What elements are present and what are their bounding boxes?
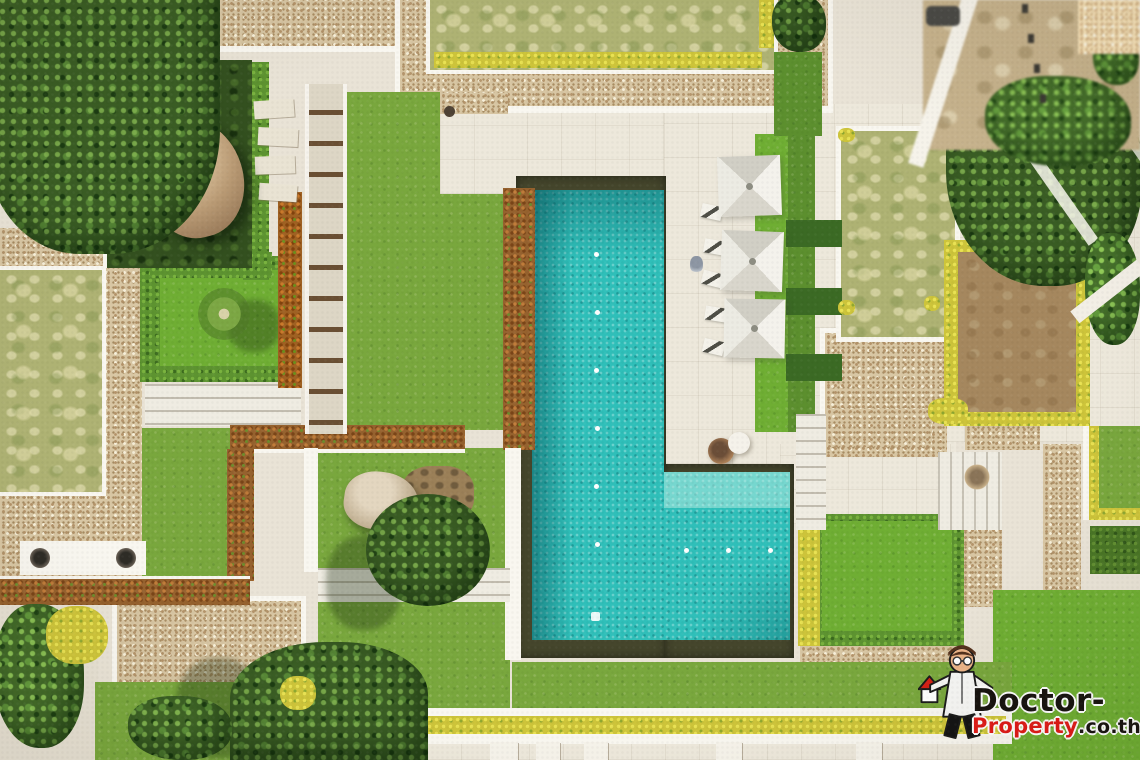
grass-shadow-bar-3 xyxy=(786,354,842,381)
round-stool xyxy=(728,432,750,454)
steps-bottom-right xyxy=(938,452,1002,530)
step-slab xyxy=(253,99,294,120)
yellow-bush-mid xyxy=(280,676,316,710)
lawn-square-right-edge xyxy=(1083,426,1140,520)
path-step-block xyxy=(856,742,882,760)
gravel-strip-vert-2 xyxy=(1043,444,1081,608)
roof-vent xyxy=(116,548,136,568)
gravel-band-arm-top xyxy=(826,408,932,447)
fence-post xyxy=(1034,64,1040,73)
long-planter xyxy=(350,708,1012,744)
grass-shadow-bar-2 xyxy=(786,288,842,315)
sand-pile xyxy=(1078,0,1140,54)
step-slab xyxy=(255,155,296,174)
watermark: Doctor- Property.co.th xyxy=(916,636,1140,760)
step-slab xyxy=(258,127,299,147)
dark-bins xyxy=(926,6,960,26)
fence-post xyxy=(1028,34,1034,43)
step-slab xyxy=(258,183,297,203)
pool-arm xyxy=(664,472,790,640)
rust-hedge-pool-west xyxy=(503,188,535,450)
pool-light xyxy=(595,542,600,547)
fence-post xyxy=(1040,94,1046,103)
pool-light xyxy=(595,426,600,431)
planter-pot xyxy=(444,106,455,117)
fence-post xyxy=(1022,4,1028,13)
tree-bottom-center xyxy=(230,642,428,760)
pool-light xyxy=(594,368,599,373)
rust-hedge-band-mid xyxy=(230,425,465,453)
lawn-notch-terrace xyxy=(440,114,508,194)
pool-skimmer xyxy=(591,612,600,621)
watermark-brand-name: Property xyxy=(972,714,1078,738)
path-step-block xyxy=(716,742,742,760)
yellow-hedge-border-l xyxy=(1089,426,1099,520)
pool-light xyxy=(595,310,600,315)
terrace-drain-ring xyxy=(964,464,990,490)
pool-light xyxy=(768,548,773,553)
pool-light xyxy=(594,252,599,257)
hedge-square-right-edge xyxy=(1090,526,1140,574)
yellow-hedge-left xyxy=(798,514,820,646)
yellow-hedge-border xyxy=(434,52,762,68)
yellow-bush-corner xyxy=(838,300,855,315)
planter-yellow-hedge xyxy=(356,716,1006,734)
watermark-brand-line1: Doctor- xyxy=(972,688,1140,715)
grass-patch-top-mid xyxy=(774,52,822,136)
pool-arm-shading xyxy=(700,560,790,640)
rust-hedge-vertical-left xyxy=(227,449,254,581)
lawn-left-mid xyxy=(142,428,230,580)
steps-to-pool-arm xyxy=(796,414,826,530)
pool-light xyxy=(684,548,689,553)
green-roof-br-lawn xyxy=(822,521,952,631)
parasol-1 xyxy=(717,155,782,217)
path-step-block xyxy=(584,742,608,760)
watermark-brand-line2: Property.co.th xyxy=(972,715,1140,738)
pool-shadow-top xyxy=(532,190,664,260)
green-roof-bottom-right xyxy=(798,514,964,646)
tree-top-mid xyxy=(772,0,826,52)
grass-strip-2 xyxy=(788,134,815,432)
aerial-photo-canvas: Doctor- Property.co.th xyxy=(0,0,1140,760)
stepping-stone-path xyxy=(305,84,347,434)
watermark-domain-suffix: .co.th xyxy=(1078,716,1140,738)
yellow-bush-corner xyxy=(838,128,855,142)
pool-light xyxy=(594,484,599,489)
grass-shadow-bar-1 xyxy=(786,220,842,247)
pool-main xyxy=(532,190,664,640)
pool-west-wall xyxy=(505,448,521,660)
palm-plant xyxy=(198,288,250,340)
shrubs-bottom-left xyxy=(128,696,232,760)
rust-hedge-strip-ladder xyxy=(278,192,302,388)
green-roof-top-lawn xyxy=(426,0,778,74)
vent-roof-left xyxy=(20,541,146,575)
pool-light xyxy=(726,548,731,553)
parasol-2 xyxy=(720,230,784,292)
yellow-bush-left xyxy=(46,606,108,664)
green-roof-left-lawn xyxy=(0,266,106,496)
pool-shallow-shelf xyxy=(664,472,790,508)
roof-vent xyxy=(30,548,50,568)
rust-hedge-band-bottom-left xyxy=(0,576,250,605)
garden-west-wall xyxy=(304,448,318,572)
neighbour-tree xyxy=(985,76,1131,166)
neighbour-land xyxy=(923,0,1140,150)
trees-top-left xyxy=(0,0,220,254)
yellow-bush-corner xyxy=(924,296,940,311)
yellow-bush-patch xyxy=(928,398,968,424)
round-tree xyxy=(366,494,490,606)
stone-walkway-left xyxy=(145,384,301,426)
path-step-block xyxy=(536,742,560,760)
path-step-block xyxy=(490,742,518,760)
person-on-terrace xyxy=(690,256,703,273)
parasol-3 xyxy=(723,298,785,358)
